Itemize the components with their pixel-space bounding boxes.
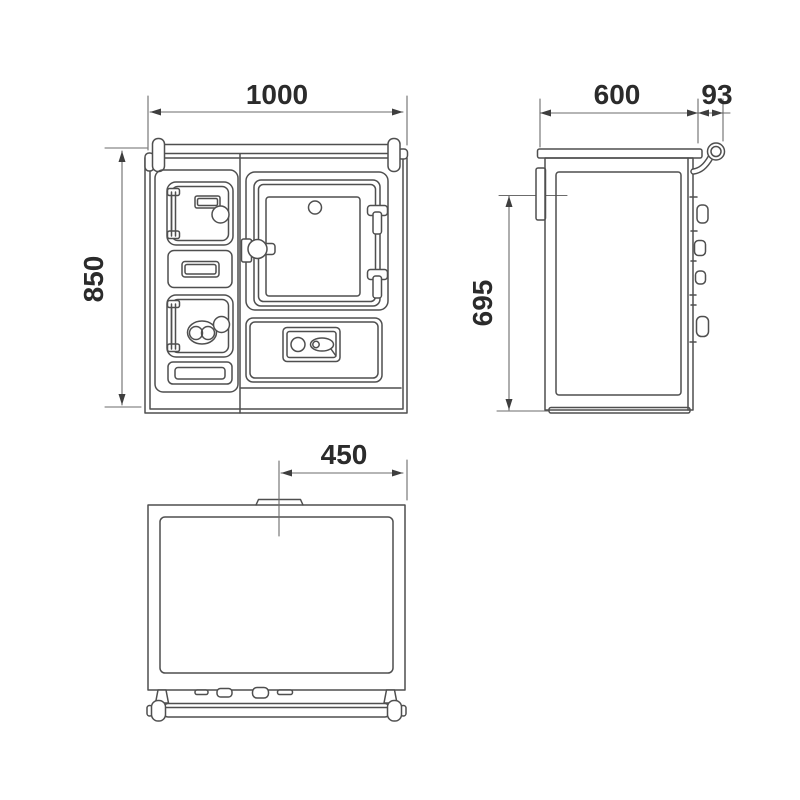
latch-hole [291, 338, 305, 352]
side-knob [697, 205, 708, 223]
side-knob [695, 241, 706, 256]
rail-end-ring [708, 143, 725, 160]
side-knob [696, 271, 706, 284]
side-handle-label: 93 [701, 79, 732, 110]
front-oven-section [240, 172, 401, 388]
top-plate-inset [160, 517, 393, 673]
rail-left-bracket [153, 139, 165, 172]
arrowhead [506, 399, 513, 410]
firebox-door [167, 182, 233, 245]
front-height-label: 850 [78, 256, 109, 303]
arrowhead [392, 109, 403, 116]
rail-cap-right [388, 701, 402, 722]
latch-key [311, 338, 334, 351]
side-depth-dimension: 600 [540, 79, 698, 147]
side-top-plate [538, 149, 703, 158]
top-flue-dimension: 450 [281, 439, 407, 500]
rail-bar [160, 145, 393, 154]
front-body [145, 153, 407, 413]
hinge-bottom [168, 231, 180, 239]
arrowhead [540, 110, 551, 117]
rail-right-bracket [388, 139, 400, 172]
arrowhead [712, 110, 723, 117]
front-view: 1000 850 [78, 79, 408, 413]
side-handle-dimension: 93 [698, 79, 733, 141]
top-front-fittings [147, 688, 406, 722]
oven-door [242, 180, 388, 306]
ash-door [167, 295, 233, 357]
arrowhead [119, 151, 126, 162]
hinge-top [168, 189, 180, 196]
arrowhead [281, 470, 292, 477]
hinge-top [168, 301, 180, 308]
side-view: 600 93 695 [467, 79, 733, 413]
oven-latch-knob [248, 240, 267, 259]
door-knob [212, 206, 229, 223]
thermometer-hole [309, 201, 322, 214]
stove-technical-drawing: 1000 850 [0, 0, 800, 800]
front-tab [195, 690, 208, 695]
side-panel-inset [556, 172, 681, 395]
top-body [148, 500, 405, 691]
hinge-bottom [168, 344, 180, 352]
oven-door-panel [266, 197, 360, 296]
arrowhead [687, 110, 698, 117]
front-width-dimension: 1000 [148, 79, 407, 150]
side-height-dimension: 695 [467, 196, 567, 412]
oven-lower-drawer [246, 318, 382, 382]
front-height-dimension: 850 [78, 148, 147, 407]
side-height-label: 695 [467, 280, 498, 327]
rail-bar [164, 704, 389, 718]
side-depth-label: 600 [594, 79, 641, 110]
front-width-label: 1000 [246, 79, 308, 110]
vent-panel [168, 251, 232, 288]
side-body [536, 149, 702, 413]
front-tab [217, 689, 232, 698]
rail-cap-left [152, 701, 166, 722]
front-tab [278, 690, 293, 695]
arrowhead [506, 196, 513, 207]
arrowhead [119, 394, 126, 405]
door-knob [214, 317, 230, 333]
left-bottom-drawer [168, 362, 232, 384]
arrowhead [150, 109, 161, 116]
side-back-panel [536, 168, 546, 220]
top-flue-label: 450 [321, 439, 368, 470]
side-knob [697, 317, 709, 337]
front-left-column [155, 170, 238, 392]
top-view: 450 [147, 439, 407, 721]
arrowhead [392, 470, 403, 477]
front-towel-rail [145, 139, 408, 172]
arrowhead [698, 110, 709, 117]
drawing-svg: 1000 850 [0, 0, 800, 800]
front-tab [253, 688, 269, 699]
